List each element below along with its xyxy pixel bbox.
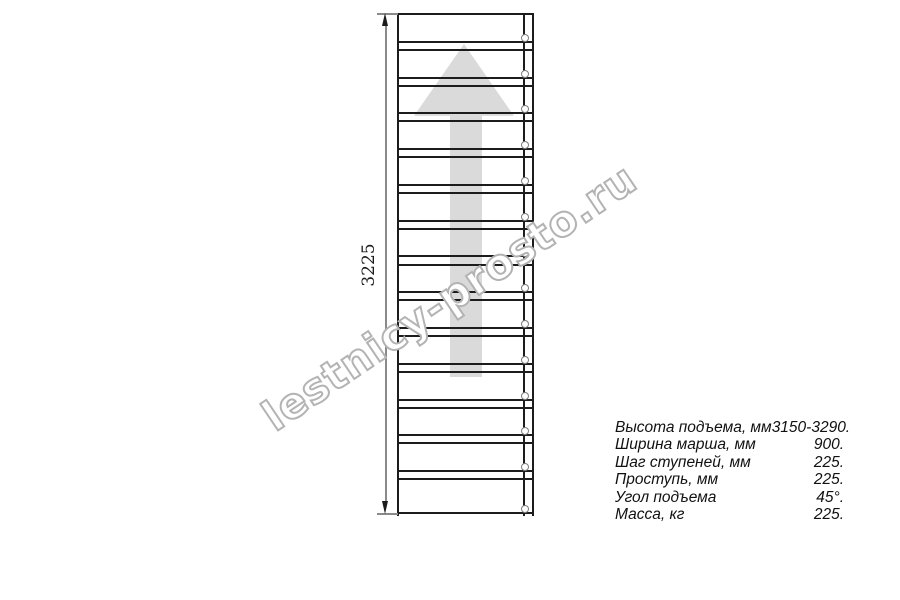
tread [397, 442, 534, 472]
spec-value: 45°. [816, 489, 844, 506]
fastener-hole-icon [521, 392, 529, 400]
fastener-hole-icon [521, 34, 529, 42]
spec-row: Угол подъема45°. [615, 489, 844, 506]
spec-row: Проступь, мм225. [615, 471, 844, 488]
dimension-line [385, 24, 387, 502]
tread [397, 478, 534, 514]
spec-row: Масса, кг225. [615, 506, 844, 523]
tread [397, 407, 534, 437]
dimension-arrow-up-icon [382, 13, 388, 26]
spec-label: Масса, кг [615, 506, 684, 523]
fastener-hole-icon [521, 505, 529, 513]
tread [397, 156, 534, 186]
tread [397, 192, 534, 222]
tread [397, 120, 534, 150]
dimension-arrow-down-icon [382, 501, 388, 514]
fastener-hole-icon [521, 356, 529, 364]
spec-value: 3150-3290. [772, 419, 850, 436]
tread [397, 49, 534, 79]
tread [397, 371, 534, 401]
spec-value: 225. [814, 506, 844, 523]
tread [397, 85, 534, 115]
spec-label: Высота подъема, мм [615, 419, 772, 436]
spec-row: Ширина марша, мм900. [615, 436, 844, 453]
tread [397, 13, 534, 43]
spec-value: 900. [814, 436, 844, 453]
staircase-drawing-page: 3225 lestnicy-prosto.ru Высота подъема, … [0, 0, 900, 600]
spec-label: Шаг ступеней, мм [615, 454, 751, 471]
spec-label: Угол подъема [615, 489, 716, 506]
spec-value: 225. [814, 454, 844, 471]
spec-row: Высота подъема, мм3150-3290. [615, 419, 844, 436]
fastener-hole-icon [521, 177, 529, 185]
dimension-label: 3225 [358, 243, 380, 287]
spec-value: 225. [814, 471, 844, 488]
spec-label: Проступь, мм [615, 471, 718, 488]
stringer-line-left [397, 13, 399, 516]
spec-label: Ширина марша, мм [615, 436, 756, 453]
fastener-hole-icon [521, 70, 529, 78]
spec-table: Высота подъема, мм3150-3290.Ширина марша… [615, 419, 844, 523]
spec-row: Шаг ступеней, мм225. [615, 454, 844, 471]
